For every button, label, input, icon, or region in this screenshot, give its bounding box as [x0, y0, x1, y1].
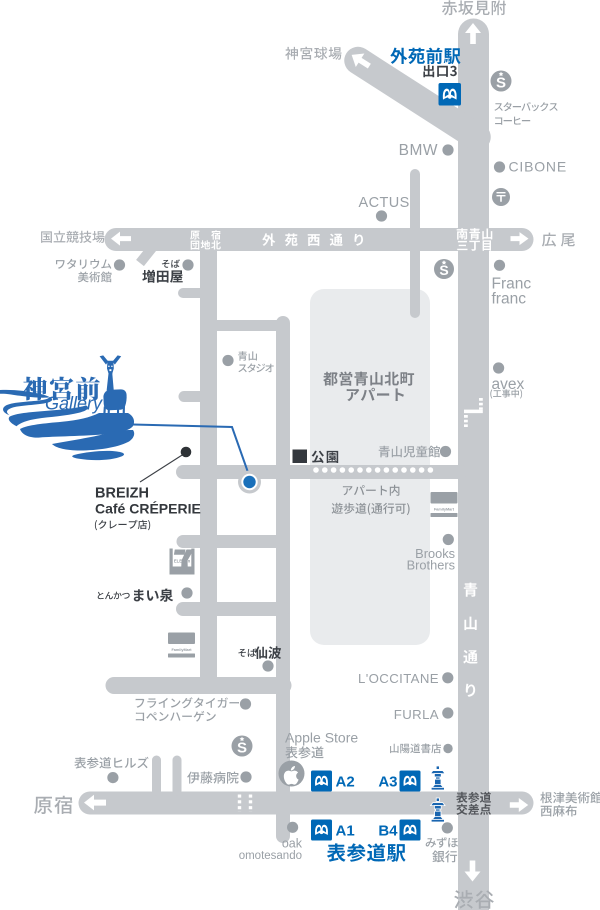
- svg-text:FamilyMart: FamilyMart: [171, 648, 192, 652]
- svg-text:omotesando: omotesando: [239, 850, 302, 862]
- svg-text:oak: oak: [282, 836, 303, 850]
- svg-text:Gallery: Gallery: [45, 394, 103, 414]
- svg-text:S: S: [496, 75, 506, 92]
- svg-text:CIBONE: CIBONE: [509, 159, 567, 175]
- svg-text:A2: A2: [336, 774, 355, 791]
- svg-text:FURLA: FURLA: [394, 707, 439, 722]
- svg-text:S: S: [439, 262, 448, 278]
- svg-text:franc: franc: [492, 290, 527, 307]
- svg-text:BMW: BMW: [399, 142, 438, 159]
- svg-text:B4: B4: [378, 823, 398, 840]
- svg-text:FamilyMart: FamilyMart: [434, 508, 455, 512]
- svg-text:ELEVEn: ELEVEn: [174, 558, 191, 563]
- svg-text:Café CRÉPERIE: Café CRÉPERIE: [95, 501, 201, 517]
- svg-text:Apple Store: Apple Store: [285, 730, 358, 746]
- svg-text:A1: A1: [336, 823, 355, 840]
- svg-text:L'OCCITANE: L'OCCITANE: [358, 671, 439, 686]
- svg-text:A3: A3: [378, 774, 397, 791]
- svg-text:Brothers: Brothers: [407, 557, 455, 572]
- svg-text:BREIZH: BREIZH: [95, 486, 149, 502]
- svg-text:S: S: [237, 740, 247, 757]
- svg-text:ACTUS: ACTUS: [359, 195, 410, 211]
